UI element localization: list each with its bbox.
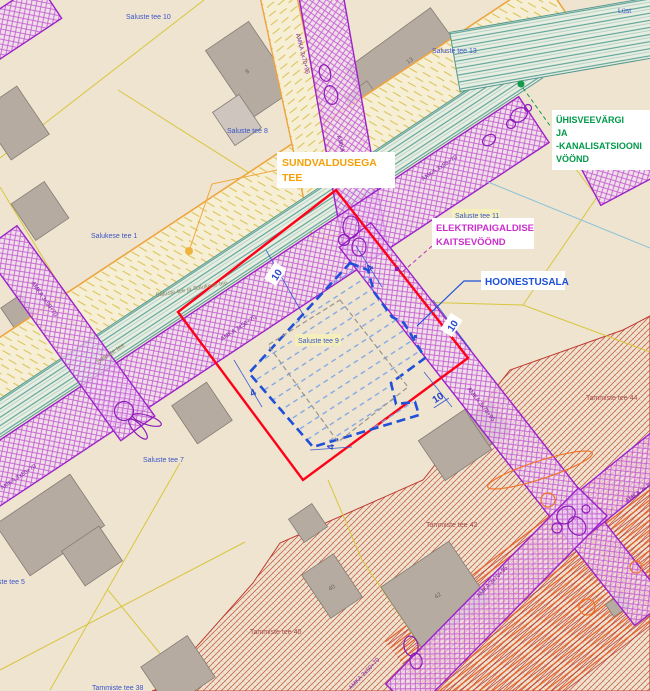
annotation-text: ÜHISVEEVÄRGI [556,115,624,125]
address-label: Tammiste tee 42 [426,522,477,529]
address-label: Saluste tee 13 [432,48,477,55]
address-label: Salukese tee 1 [91,233,137,240]
address-label: Saluste tee 8 [227,128,268,135]
annotation-text: SUNDVALDUSEGA [282,157,377,169]
annotation-text: -KANALISATSIOONI [556,141,642,151]
address-label: Saluste tee 7 [143,457,184,464]
address-label: Lüst [618,8,631,15]
annotation-text: ELEKTRIPAIGALDISE [436,223,534,234]
leader-dot [518,81,525,88]
leader-dot [185,247,193,255]
annotation-text: JA [556,128,568,138]
annotation-text: HOONESTUSALA [485,277,569,288]
address-label: Saluste tee 10 [126,14,171,21]
address-label: Tammiste tee 38 [92,685,143,691]
annotation-text: VÖÖND [556,154,590,164]
point-marker [414,335,417,338]
cable-marker [395,267,399,271]
planning-map: 10 4 4 4 10 10 [0,0,650,691]
annotation-text: KAITSEVÖÖND [436,237,506,248]
map-viewport[interactable]: 10 4 4 4 10 10 [0,0,650,691]
address-label: Saluste tee 5 [0,579,25,586]
address-label: Tammiste tee 44 [586,395,637,402]
address-label: Tammiste tee 40 [250,629,301,636]
annotation-text: TEE [282,172,302,184]
address-label: Saluste tee 9 [298,338,339,345]
